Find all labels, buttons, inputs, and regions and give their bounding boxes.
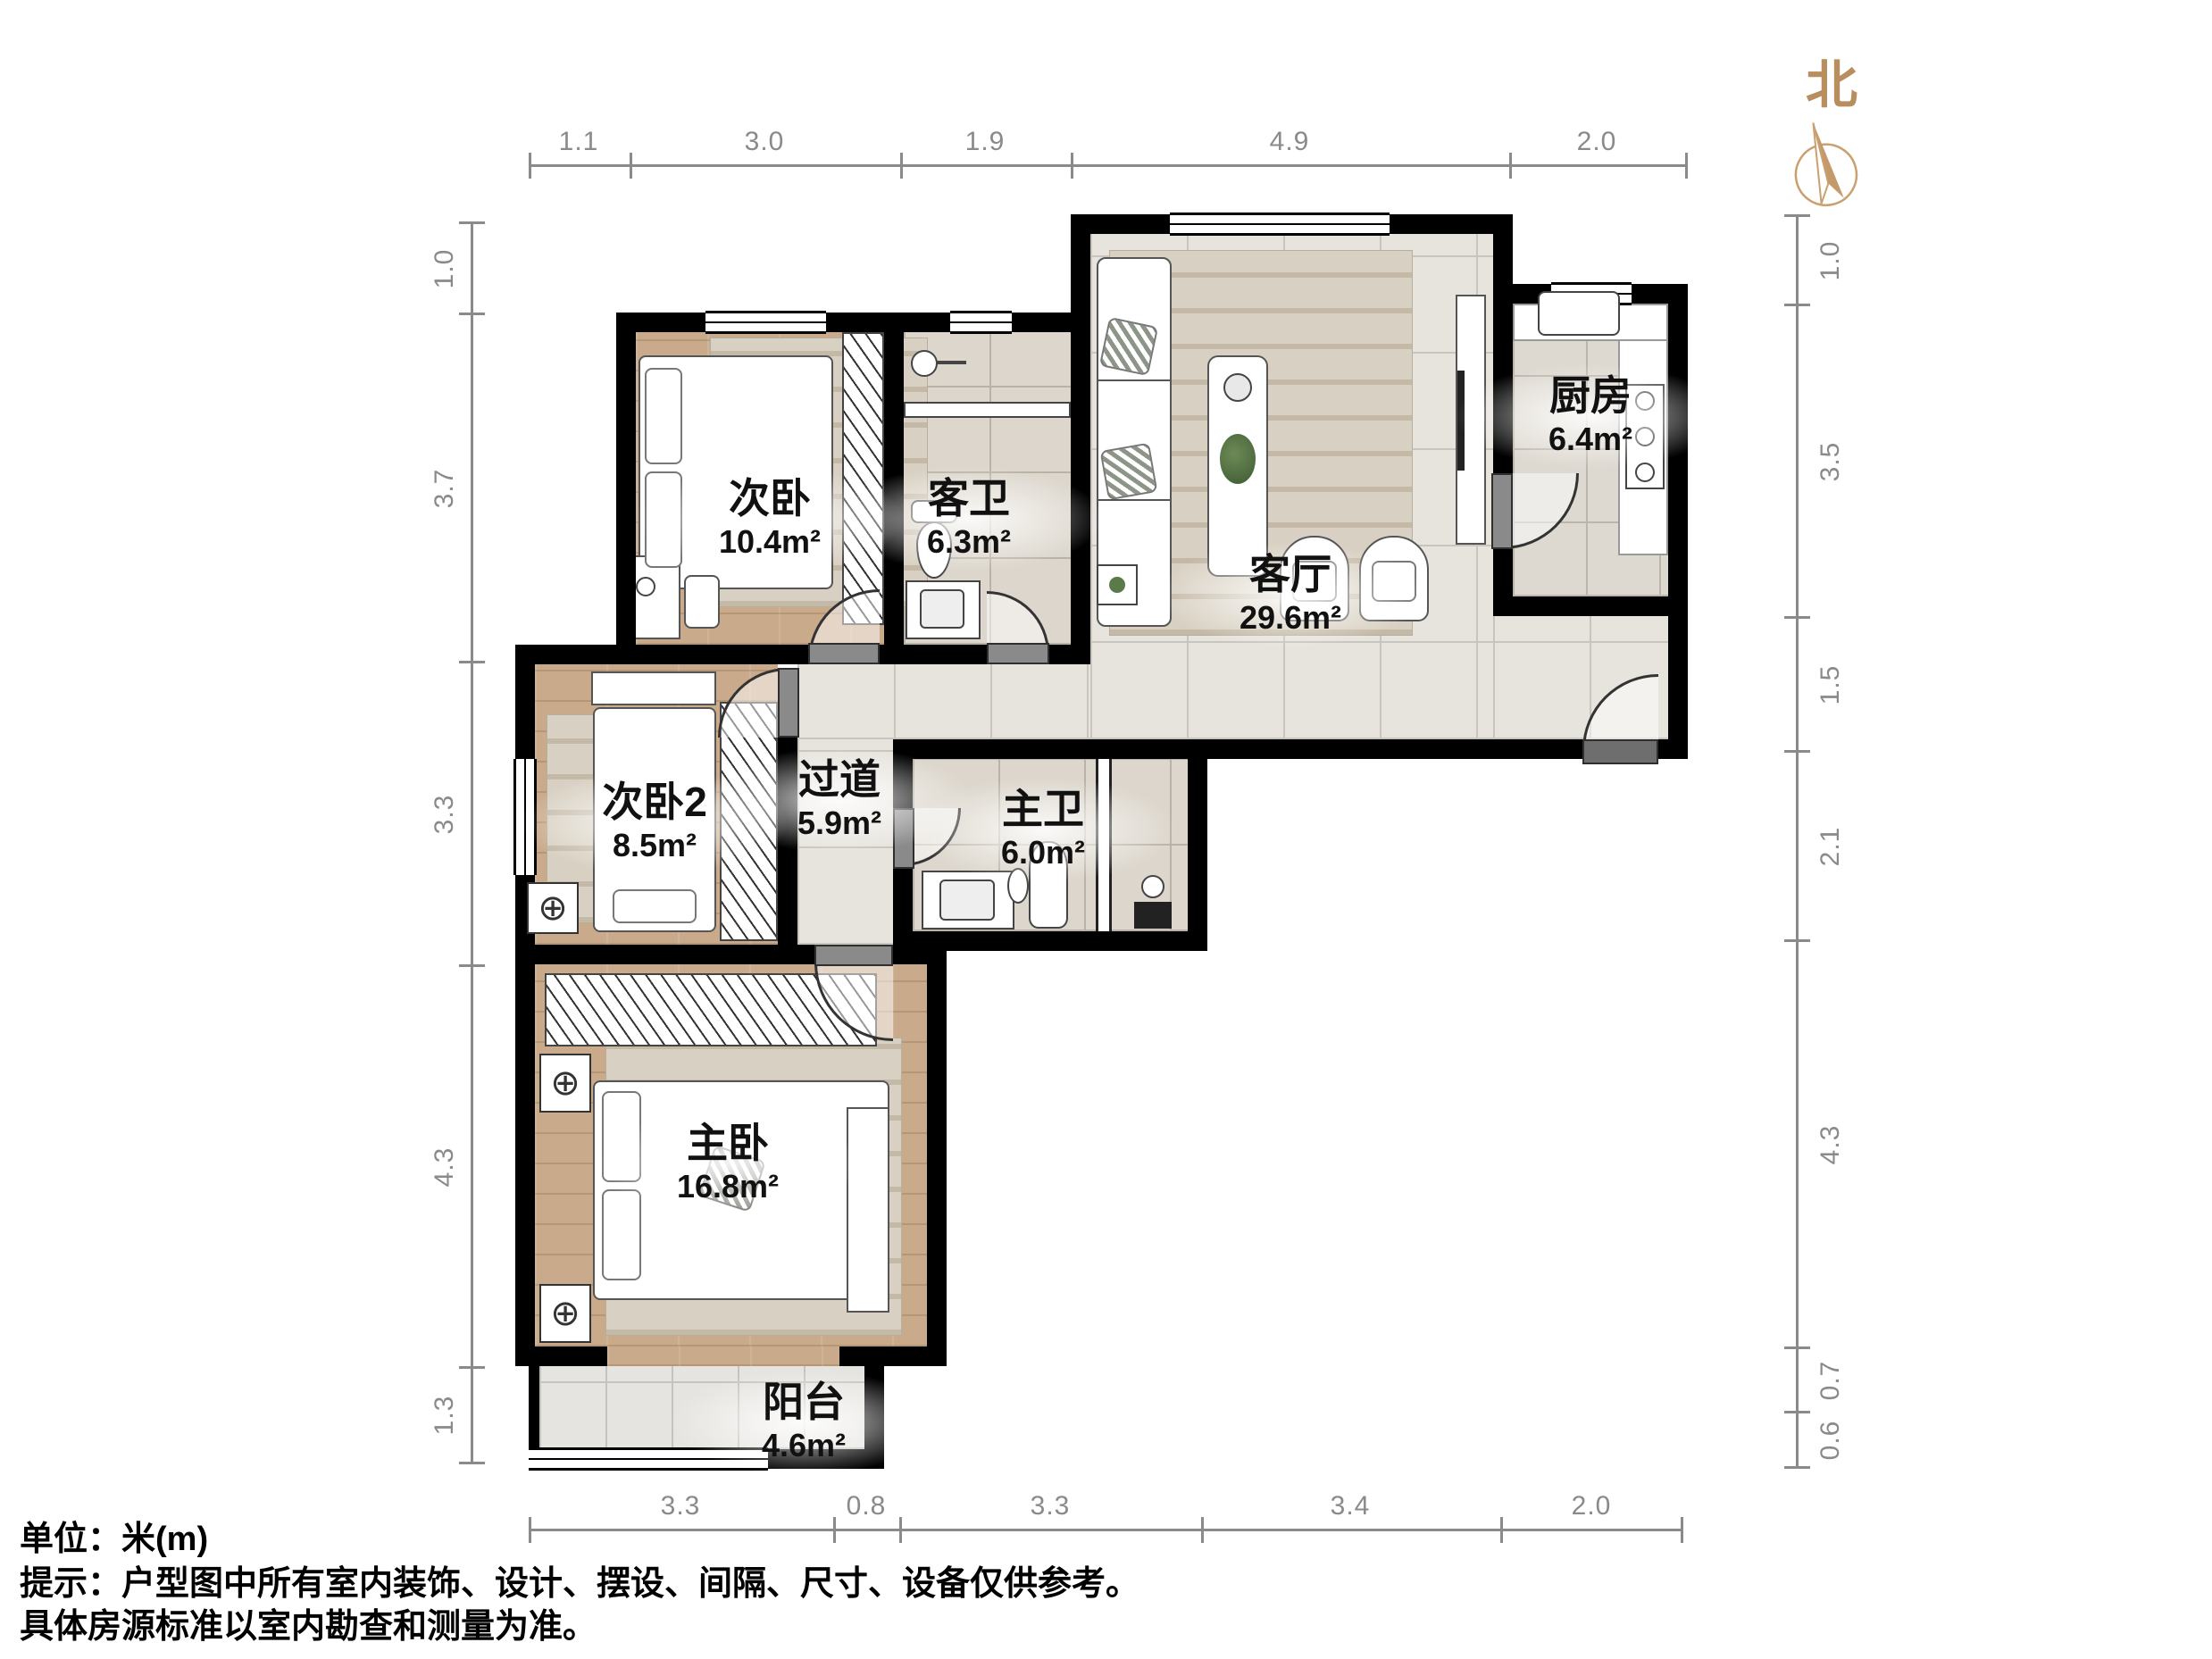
dim-line-top [529,164,1688,167]
wall-bedroom1-top [616,313,1090,332]
kitchen-sink [1538,291,1620,336]
shower-head-icon [911,350,938,377]
guest-bath-door-leaf [987,643,1049,664]
dim-tick [459,964,485,967]
dim-bottom-4: 2.0 [1538,1491,1645,1521]
dim-left-4: 1.3 [430,1362,460,1469]
dim-line-right [1796,214,1799,1469]
bedroom1-lamp-icon [636,577,655,596]
room-label-master-bath: 主卫 6.0m² [909,777,1177,882]
dim-tick [1784,939,1810,942]
dim-tick [1071,153,1073,179]
room-label-living: 客厅 29.6m² [1156,542,1424,647]
bedroom1-door-leaf [808,643,880,664]
dim-top-2: 1.9 [931,127,1039,157]
floor-balcony-threshold [607,1346,839,1366]
wall-mbath-right [1188,739,1207,951]
guest-bath-sink [920,589,964,629]
dim-top-1: 3.0 [711,127,818,157]
balcony-area: 4.6m² [670,1425,938,1466]
dim-right-3: 2.1 [1816,793,1846,900]
guest-bath-name: 客卫 [835,475,1103,521]
bedroom1-pillow-1 [645,368,682,464]
dim-tick [1509,153,1512,179]
dim-tick [1784,616,1810,619]
wall-entry-a [1207,739,1582,759]
wall-bedroom1-left [616,313,636,664]
master-bath-sink [939,880,995,921]
dim-tick [1681,1517,1683,1543]
note-tip2: 具体房源标准以室内勘查和测量为准。 [20,1598,597,1647]
dim-right-1: 3.5 [1816,408,1846,515]
bedroom2-pillow [613,889,697,923]
wall-east-outer [1668,284,1688,759]
dim-bottom-3: 3.4 [1297,1491,1404,1521]
master-shower-base [1134,902,1172,929]
dim-tick [459,661,485,663]
wall-master-bottom-b [839,1346,947,1366]
dim-tick [529,1517,531,1543]
dim-tick [1784,304,1810,306]
wall-mbath-bottom [893,931,1207,951]
master-bath-area: 6.0m² [909,832,1177,873]
dim-top-3: 4.9 [1236,127,1343,157]
dim-line-left [471,221,473,1464]
bedroom1-chair [684,575,720,629]
coffee-table-plant [1220,434,1256,484]
sofa-pillow-1 [1099,317,1158,376]
dim-tick [900,153,903,179]
wall-master-bottom-a [515,1346,607,1366]
wall-corridor-top-a [515,645,808,664]
decor-frame-flower [1109,577,1125,593]
bedroom1-window [705,311,826,334]
master-door-leaf [814,945,893,966]
dim-tick [459,1366,485,1369]
dim-left-2: 3.3 [430,761,460,868]
living-bay-window [1170,213,1390,236]
master-bath-name: 主卫 [909,786,1177,832]
dim-line-bottom [529,1529,1683,1531]
compass-icon [1766,105,1882,221]
living-name: 客厅 [1156,551,1424,597]
room-label-balcony: 阳台 4.6m² [670,1370,938,1475]
dim-tick [1784,1411,1810,1413]
dim-right-4: 4.3 [1816,1091,1846,1198]
coffee-table-tray [1223,373,1252,402]
dim-tick [1784,750,1810,753]
dim-right-0: 1.0 [1816,207,1846,314]
dim-tick [1201,1517,1204,1543]
wall-master-right [927,945,947,1366]
entry-door-leaf [1582,739,1658,764]
guest-bath-area: 6.3m² [835,521,1103,563]
shower-arm-icon [936,361,966,364]
dim-bottom-1: 0.8 [813,1491,920,1521]
dim-bottom-2: 3.3 [997,1491,1104,1521]
kitchen-name: 厨房 [1457,372,1724,419]
wall-corridor-top-b [880,645,987,664]
bedroom2-cabinet [591,671,716,705]
room-label-kitchen: 厨房 6.4m² [1457,363,1724,469]
wall-kitchen-left-b [1493,549,1513,596]
dim-bottom-0: 3.3 [627,1491,734,1521]
dim-tick [1685,153,1688,179]
guest-bath-window [950,311,1012,334]
kitchen-door-leaf [1491,473,1513,549]
note-unit: 单位：米(m) [20,1511,208,1560]
dim-top-0: 1.1 [525,127,632,157]
master-area: 16.8m² [594,1166,862,1207]
note-tip: 提示：户型图中所有室内装饰、设计、摆设、间隔、尺寸、设备仅供参考。 [20,1555,1139,1605]
guest-bath-towel-bar [904,402,1071,418]
room-label-guest-bath: 客卫 6.3m² [835,466,1103,571]
dim-right-2: 1.5 [1816,631,1846,738]
dim-tick [459,313,485,315]
dim-top-4: 2.0 [1543,127,1650,157]
dim-tick [459,221,485,224]
wall-kitchen-bottom [1493,596,1688,616]
room-label-master: 主卧 16.8m² [594,1111,862,1216]
master-nightstand-1: ⊕ [539,1054,591,1113]
wall-west-upper [515,645,535,759]
sofa-pillow-2 [1100,443,1158,501]
dim-left-1: 3.7 [430,435,460,542]
bedroom2-door-leaf [778,668,799,738]
dim-left-0: 1.0 [430,215,460,322]
dim-right-6: 0.6 [1816,1387,1846,1494]
master-name: 主卧 [594,1120,862,1166]
floorplan-canvas: ⊕ ⊕ ⊕ 次卧 10.4m² 客卫 6.3m² 客厅 29.6m² 厨房 6.… [0,0,2212,1659]
dim-tick [1784,1466,1810,1469]
dim-left-3: 4.3 [430,1113,460,1221]
wall-living-left [1071,214,1090,661]
wall-corridor-top-c [1049,645,1090,664]
dim-tick [459,1462,485,1464]
wall-master-top-a [515,945,814,964]
living-area: 29.6m² [1156,597,1424,638]
floor-corridor [797,664,1090,739]
bedroom2-pier-symbol: ⊕ [527,882,579,934]
master-nightstand-2: ⊕ [539,1284,591,1343]
dim-tick [1784,1346,1810,1349]
dim-tick [1500,1517,1503,1543]
kitchen-area: 6.4m² [1457,419,1724,460]
balcony-name: 阳台 [670,1379,938,1425]
